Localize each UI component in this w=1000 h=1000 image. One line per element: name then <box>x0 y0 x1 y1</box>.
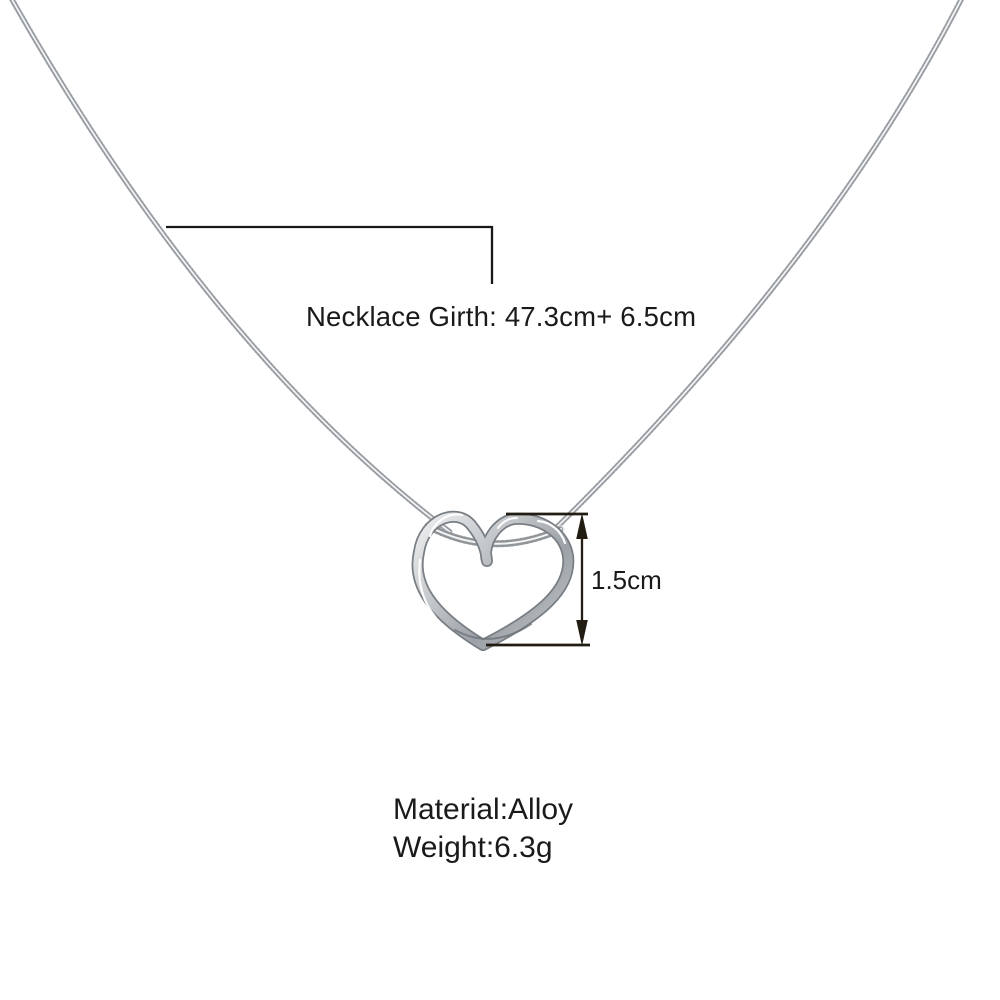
necklace-girth-label: Necklace Girth: 47.3cm+ 6.5cm <box>306 303 696 331</box>
arrowhead-up-icon <box>576 513 588 539</box>
product-image: Necklace Girth: 47.3cm+ 6.5cm 1.5cm Mate… <box>0 0 1000 1000</box>
girth-leader-line <box>166 227 492 284</box>
pendant-size-label: 1.5cm <box>591 567 662 593</box>
necklace-chain-left <box>10 0 450 532</box>
necklace-chain-right <box>557 0 963 527</box>
pendant-dimension-annotation <box>486 513 590 646</box>
material-spec-label: Material:Alloy <box>393 795 573 825</box>
arrowhead-down-icon <box>576 620 588 646</box>
weight-spec-label: Weight:6.3g <box>393 833 553 863</box>
